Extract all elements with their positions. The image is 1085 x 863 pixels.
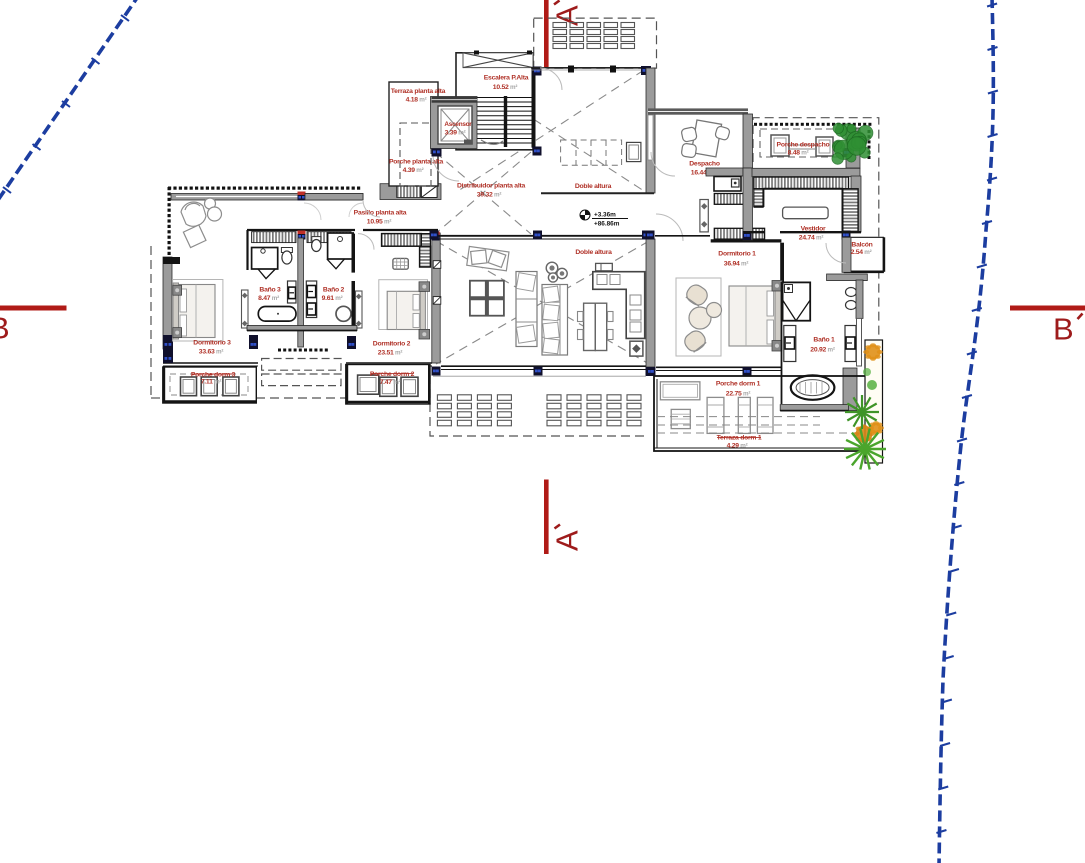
svg-text:B: B [1053, 312, 1074, 347]
svg-text:Escalera P.Alta: Escalera P.Alta [484, 74, 529, 81]
svg-text:4.18 m²: 4.18 m² [406, 96, 427, 103]
svg-text:Despacho: Despacho [689, 161, 720, 168]
svg-text:24.74 m²: 24.74 m² [799, 235, 824, 242]
svg-text:Baño 3: Baño 3 [259, 287, 281, 294]
svg-text:Doble altura: Doble altura [575, 183, 612, 190]
svg-text:Ascensor: Ascensor [444, 121, 472, 128]
svg-text:Baño 2: Baño 2 [323, 287, 345, 294]
svg-text:Porche dorm 1: Porche dorm 1 [716, 381, 761, 388]
svg-text:10.52 m²: 10.52 m² [493, 84, 518, 91]
svg-text:Balcón: Balcón [851, 241, 872, 248]
svg-text:Pasillo planta alta: Pasillo planta alta [354, 210, 407, 217]
svg-text:Porche despacho: Porche despacho [777, 141, 830, 148]
svg-text:Porche planta alta: Porche planta alta [389, 158, 444, 165]
svg-text:Terraza planta alta: Terraza planta alta [391, 88, 446, 95]
svg-text:Doble altura: Doble altura [575, 249, 612, 256]
svg-text:7.47 m²: 7.47 m² [380, 379, 401, 386]
svg-text:8.47 m²: 8.47 m² [258, 295, 279, 302]
svg-text:Porche dorm 3: Porche dorm 3 [191, 371, 236, 378]
svg-text:39.32 m²: 39.32 m² [477, 192, 502, 199]
svg-text:Distribuidor planta alta: Distribuidor planta alta [457, 183, 525, 190]
svg-text:Dormitorio 3: Dormitorio 3 [193, 340, 231, 347]
svg-text:Porche dorm 2: Porche dorm 2 [370, 371, 415, 378]
svg-text:8.48 m²: 8.48 m² [788, 149, 809, 156]
svg-text:B: B [0, 311, 10, 346]
svg-text:4.29 m²: 4.29 m² [727, 442, 748, 449]
svg-text:23.51 m²: 23.51 m² [378, 350, 403, 357]
svg-text:A: A [550, 530, 585, 551]
svg-text:7.11 m²: 7.11 m² [201, 378, 222, 385]
svg-text:2.54 m²: 2.54 m² [851, 249, 872, 256]
svg-text:Dormitorio 1: Dormitorio 1 [718, 251, 756, 258]
svg-text:Dormitorio 2: Dormitorio 2 [373, 341, 411, 348]
svg-text:20.92 m²: 20.92 m² [810, 347, 835, 354]
svg-text:Baño 1: Baño 1 [813, 337, 835, 344]
svg-text:33.63 m²: 33.63 m² [199, 349, 224, 356]
svg-text:3.39 m²: 3.39 m² [445, 130, 466, 137]
svg-text:+3.36m: +3.36m [594, 212, 616, 219]
svg-text:9.61 m²: 9.61 m² [322, 295, 343, 302]
svg-text:4.39 m²: 4.39 m² [403, 167, 424, 174]
svg-text:22.75 m²: 22.75 m² [726, 391, 751, 398]
svg-text:36.94 m²: 36.94 m² [724, 261, 749, 268]
svg-text:Terraza dorm 1: Terraza dorm 1 [717, 435, 762, 442]
svg-text:10.95 m²: 10.95 m² [367, 219, 392, 226]
svg-text:+86.86m: +86.86m [594, 221, 620, 228]
